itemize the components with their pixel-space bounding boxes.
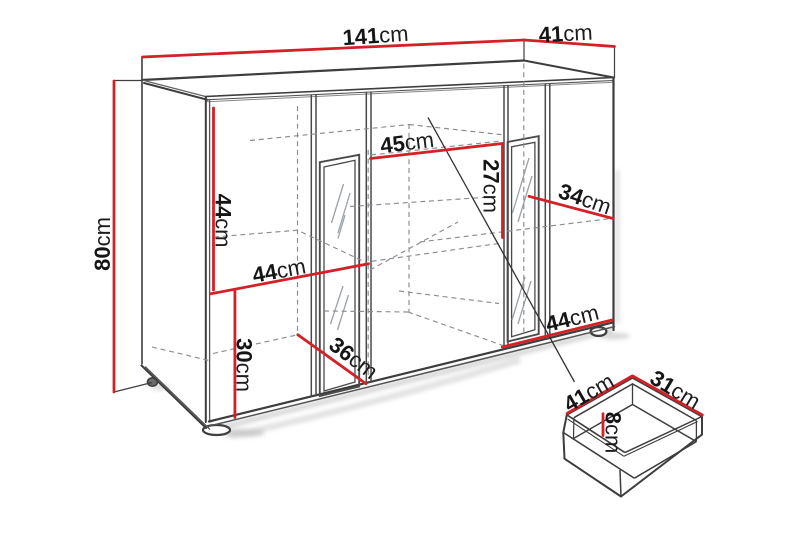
svg-text:27cm: 27cm: [479, 159, 504, 213]
svg-text:41cm: 41cm: [538, 20, 593, 48]
svg-text:30cm: 30cm: [232, 338, 257, 392]
svg-text:80cm: 80cm: [90, 217, 115, 271]
svg-text:8cm: 8cm: [601, 412, 626, 454]
svg-text:44cm: 44cm: [211, 194, 236, 248]
svg-text:141cm: 141cm: [342, 21, 410, 51]
